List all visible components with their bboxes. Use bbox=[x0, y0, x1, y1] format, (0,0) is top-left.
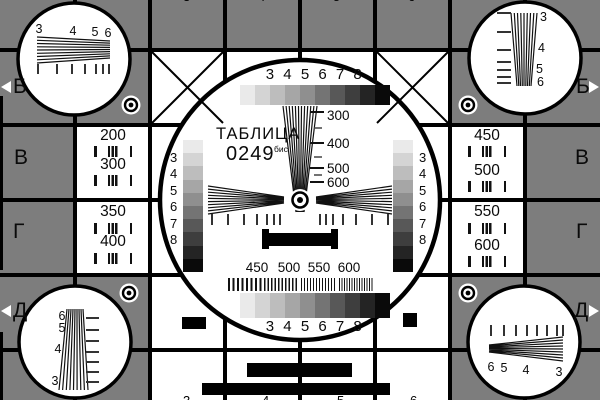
left-column-scale-4: 4 bbox=[170, 167, 177, 180]
card-number: 0249 bbox=[226, 144, 275, 164]
edge-letter-left-v: В bbox=[14, 147, 28, 168]
tr-circle-3: 3 bbox=[540, 11, 547, 24]
border-digit-bottom: 5 bbox=[335, 395, 347, 400]
bullseye-top-left bbox=[122, 96, 141, 115]
br-circle-6: 6 bbox=[488, 361, 495, 374]
resolution-label-450: 450 bbox=[246, 261, 269, 275]
wedge-label-500: 500 bbox=[327, 162, 350, 176]
right-panel-600: 600 bbox=[474, 238, 500, 254]
left-column-scale-3: 3 bbox=[170, 151, 177, 164]
edge-letter-right-b: Б bbox=[576, 76, 590, 97]
tick-pattern bbox=[468, 256, 506, 267]
right-column-scale-8: 8 bbox=[419, 233, 426, 246]
bullseye-bottom-left bbox=[120, 284, 139, 303]
arrow-right-b-icon bbox=[589, 81, 599, 93]
arrow-left-b-icon bbox=[1, 81, 11, 93]
grayscale-strip-top bbox=[240, 85, 390, 105]
corner-circle-top-left bbox=[18, 3, 130, 115]
bl-circle-5: 5 bbox=[59, 322, 66, 335]
right-column-scale-3: 3 bbox=[419, 151, 426, 164]
edge-letter-right-g: Г bbox=[576, 221, 587, 242]
card-title: ТАБЛИЦА bbox=[216, 126, 300, 143]
bullseye-top-right bbox=[459, 96, 478, 115]
left-column-scale-7: 7 bbox=[170, 217, 177, 230]
border-digit-bottom: 6 bbox=[408, 395, 420, 400]
br-circle-5: 5 bbox=[501, 362, 508, 375]
border-digit-top: 3 bbox=[181, 0, 193, 3]
border-digit-top: 6 bbox=[406, 0, 418, 3]
card-number-suffix: бис bbox=[274, 145, 288, 154]
test-card: 3 4 5 6 7 8 3 4 5 6 7 8 ТАБЛИЦА 0249 бис… bbox=[0, 0, 600, 400]
edge-letter-left-d: Д bbox=[13, 300, 27, 321]
bl-circle-3: 3 bbox=[52, 375, 59, 388]
resolution-label-600: 600 bbox=[338, 261, 361, 275]
arrow-right-d-icon bbox=[589, 305, 599, 317]
bullseye-bottom-right bbox=[459, 284, 478, 303]
top-scale-row: 3 4 5 6 7 8 bbox=[240, 67, 390, 82]
test-pattern-graphics bbox=[0, 0, 600, 400]
tl-circle-3: 3 bbox=[36, 23, 43, 36]
br-circle-4: 4 bbox=[523, 364, 530, 377]
right-column-scale-5: 5 bbox=[419, 184, 426, 197]
right-column-scale-4: 4 bbox=[419, 167, 426, 180]
grating-550 bbox=[301, 278, 337, 291]
tr-circle-4: 4 bbox=[538, 42, 545, 55]
right-panel-450: 450 bbox=[474, 128, 500, 144]
edge-letter-right-v: В bbox=[575, 147, 589, 168]
right-column-scale-6: 6 bbox=[419, 200, 426, 213]
grayscale-column-right bbox=[393, 140, 413, 272]
left-column-scale-8: 8 bbox=[170, 233, 177, 246]
border-digit-bottom: 3 bbox=[181, 395, 193, 400]
grayscale-column-left bbox=[183, 140, 203, 272]
tl-circle-5: 5 bbox=[92, 26, 99, 39]
left-border-segment bbox=[0, 96, 3, 270]
br-circle-3: 3 bbox=[556, 366, 563, 379]
tick-pattern bbox=[468, 146, 506, 157]
grating-500 bbox=[264, 278, 299, 291]
left-column-scale-5: 5 bbox=[170, 184, 177, 197]
left-panel-350: 350 bbox=[100, 204, 126, 220]
resolution-label-500: 500 bbox=[278, 261, 301, 275]
edge-letter-left-b: Б bbox=[13, 76, 27, 97]
left-border-segment bbox=[0, 332, 3, 400]
left-panel-300: 300 bbox=[100, 157, 126, 173]
right-column-scale-7: 7 bbox=[419, 217, 426, 230]
corner-circle-top-right bbox=[469, 2, 581, 114]
tl-circle-6: 6 bbox=[105, 27, 112, 40]
edge-letter-left-g: Г bbox=[13, 221, 24, 242]
right-panel-500: 500 bbox=[474, 163, 500, 179]
bottom-bar-long bbox=[202, 383, 390, 395]
left-panel-200: 200 bbox=[100, 128, 126, 144]
tick-pattern bbox=[468, 181, 506, 192]
border-digit-top: 5 bbox=[331, 0, 343, 3]
edge-letter-right-d: Д bbox=[574, 300, 588, 321]
tr-circle-5: 5 bbox=[536, 63, 543, 76]
wedge-label-300: 300 bbox=[327, 109, 350, 123]
left-panel-400: 400 bbox=[100, 234, 126, 250]
bl-circle-4: 4 bbox=[55, 343, 62, 356]
border-digit-top: 4 bbox=[256, 0, 268, 3]
wedge-label-400: 400 bbox=[327, 137, 350, 151]
tl-circle-4: 4 bbox=[70, 25, 77, 38]
tick-pattern bbox=[94, 253, 132, 264]
tick-pattern bbox=[468, 223, 506, 234]
bottom-bar-short bbox=[247, 363, 352, 377]
tr-circle-6: 6 bbox=[537, 76, 544, 89]
wedge-label-600: 600 bbox=[327, 176, 350, 190]
grayscale-strip-bottom bbox=[240, 293, 390, 318]
corner-circle-bottom-right bbox=[468, 286, 580, 398]
black-patch-left bbox=[182, 317, 206, 329]
right-panel-550: 550 bbox=[474, 204, 500, 220]
border-digit-bottom: 4 bbox=[260, 395, 272, 400]
bottom-scale-row: 3 4 5 6 7 8 bbox=[240, 319, 390, 334]
corner-circle-bottom-left bbox=[19, 286, 131, 398]
resolution-label-550: 550 bbox=[308, 261, 331, 275]
grating-600 bbox=[339, 278, 374, 291]
tick-pattern bbox=[94, 175, 132, 186]
black-patch-right bbox=[403, 313, 417, 327]
arrow-left-d-icon bbox=[1, 305, 11, 317]
left-column-scale-6: 6 bbox=[170, 200, 177, 213]
grating-450 bbox=[228, 278, 262, 291]
bullseye-center bbox=[289, 189, 311, 211]
